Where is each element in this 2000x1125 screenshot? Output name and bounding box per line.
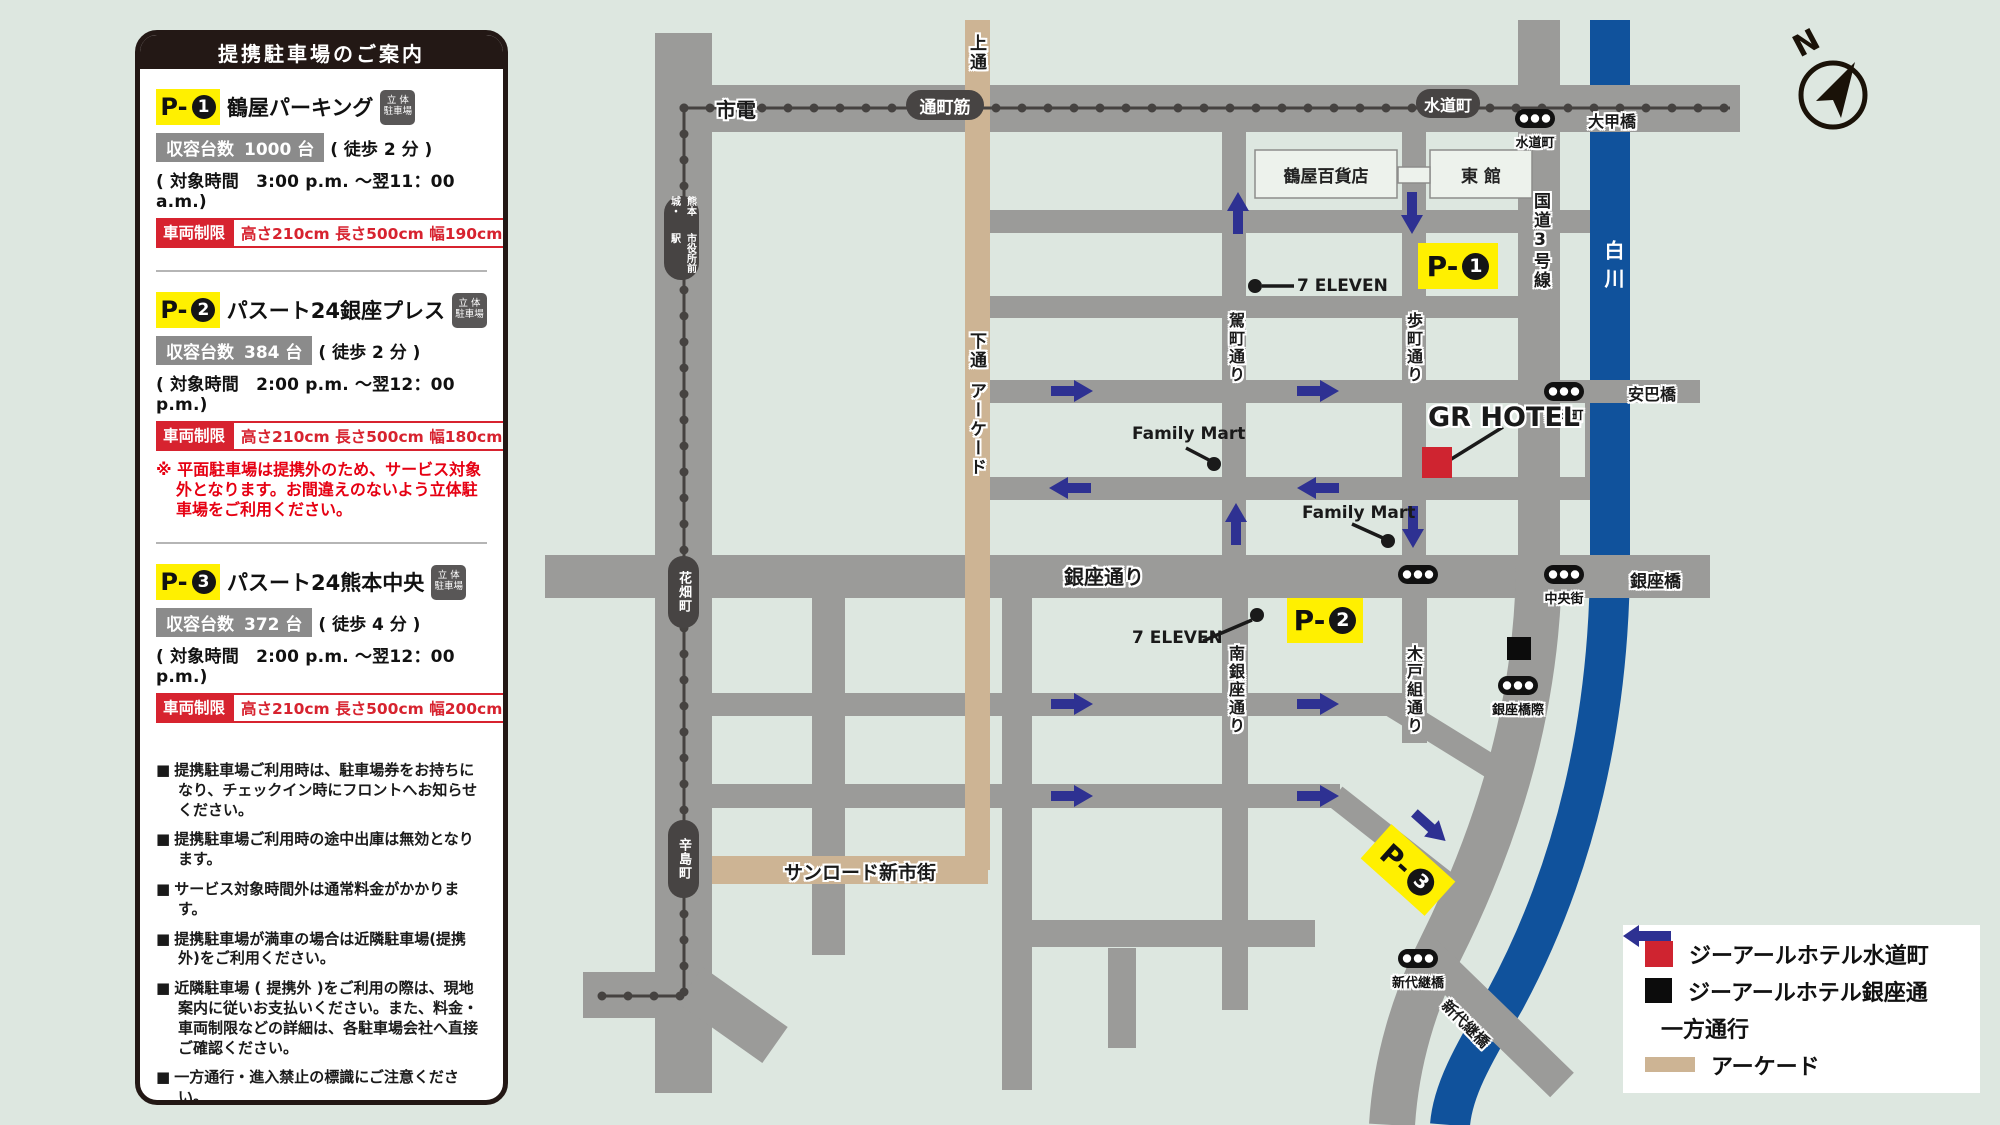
- station-karashimacho: 辛島町: [668, 820, 699, 898]
- street-sunroad: サンロード新市街: [784, 858, 936, 885]
- street-kamitori: 上通: [964, 34, 989, 72]
- legend-label-oneway: 一方通行: [1661, 1012, 1749, 1044]
- divider: [156, 270, 487, 272]
- gr-hotel-ginzadori-marker: [1507, 637, 1531, 660]
- p3-number: 3: [192, 570, 216, 594]
- note-item: ■近隣駐車場 ( 提携外 )をご利用の際は、現地案内に従いお支払いください。また…: [156, 979, 487, 1058]
- panel-body: P-1 鶴屋パーキング 立 体駐車場 収容台数1000 台 ( 徒歩 2 分 )…: [140, 89, 503, 1105]
- multistory-badge: 立 体駐車場: [452, 293, 487, 328]
- p1-number: 1: [192, 95, 216, 119]
- street-route3: 国道3号線: [1528, 192, 1553, 290]
- family-mart-1: Family Mart: [1132, 424, 1245, 444]
- lot2-name: パスート24銀座プレス: [227, 295, 445, 325]
- multistory-badge: 立 体駐車場: [431, 565, 466, 600]
- parking-info-panel: 提携駐車場のご案内 P-1 鶴屋パーキング 立 体駐車場 収容台数1000 台 …: [135, 30, 508, 1105]
- note-item: ■提携駐車場が満車の場合は近隣駐車場(提携外)をご利用ください。: [156, 930, 487, 970]
- note-item: ■サービス対象時間外は通常料金がかかります。: [156, 880, 487, 920]
- p2-number: 2: [191, 298, 215, 322]
- lot1-limit-label: 車両制限: [156, 218, 232, 248]
- lot1-walk-time: ( 徒歩 2 分 ): [330, 135, 432, 160]
- notes-list: ■提携駐車場ご利用時は、駐車場券をお持ちになり、チェックイン時にフロントへお知ら…: [156, 761, 487, 1105]
- seven-eleven-1: 7 ELEVEN: [1297, 276, 1388, 296]
- lot3-name: パスート24熊本中央: [227, 567, 424, 597]
- lot2-limit-label: 車両制限: [156, 421, 232, 451]
- note-item: ■提携駐車場ご利用時は、駐車場券をお持ちになり、チェックイン時にフロントへお知ら…: [156, 761, 487, 820]
- street-minamiginza: 南銀座通り: [1223, 645, 1247, 735]
- legend-label-hotel-suidocho: ジーアールホテル水道町: [1689, 938, 1929, 970]
- lot2-capacity: 収容台数384 台: [156, 336, 312, 365]
- seven-eleven-2: 7 ELEVEN: [1132, 628, 1223, 648]
- station-hanabatacho: 花畑町: [668, 556, 699, 628]
- panel-title: 提携駐車場のご案内: [140, 35, 503, 69]
- arcade-streets: [712, 20, 990, 884]
- lot1-capacity: 収容台数1000 台: [156, 133, 324, 162]
- note-item: ■提携駐車場ご利用時の途中出庫は無効となります。: [156, 830, 487, 870]
- map-legend: ジーアールホテル水道町 ジーアールホテル銀座通 一方通行 アーケード: [1623, 925, 1980, 1093]
- map-p2-badge: P-2: [1287, 598, 1363, 643]
- parking-lot-1: P-1 鶴屋パーキング 立 体駐車場 収容台数1000 台 ( 徒歩 2 分 )…: [156, 89, 487, 248]
- city-map: 市電 通町筋 水道町 熊本城・市役所前駅 花畑町 辛島町 上通 下通 アーケード…: [540, 0, 2000, 1125]
- tsuruya-east-building: 東 館: [1430, 150, 1532, 198]
- map-p1-badge: P-1: [1418, 243, 1498, 289]
- divider: [156, 542, 487, 544]
- lot1-limit-value: 高さ210cm 長さ500cm 幅190cm: [232, 218, 508, 248]
- street-shimotori: 下通: [964, 332, 989, 370]
- station-kumamotojo: 熊本城・市役所前駅: [664, 196, 699, 280]
- lot2-hours: ( 対象時間 2:00 p.m. ～翌12：00 p.m.): [156, 370, 487, 415]
- legend-black-square-icon: [1645, 978, 1672, 1003]
- lot3-hours: ( 対象時間 2:00 p.m. ～翌12：00 p.m.): [156, 642, 487, 687]
- lot2-walk-time: ( 徒歩 2 分 ): [318, 338, 420, 363]
- lot3-limit-value: 高さ210cm 長さ500cm 幅200cm: [232, 693, 508, 723]
- street-arcade: アーケード: [964, 382, 989, 477]
- multistory-badge: 立 体駐車場: [380, 90, 415, 125]
- street-kagomachi: 駕町通り: [1223, 312, 1247, 384]
- lot2-warning: ※ 平面駐車場は提携外のため、サービス対象外となります。お間違えのないよう立体駐…: [156, 460, 487, 520]
- station-suidocho: 水道町: [1416, 89, 1480, 118]
- tl-label-suidocho: 水道町: [1515, 132, 1554, 151]
- tl-label-ginzabashigiwa: 銀座橋際: [1492, 699, 1544, 718]
- river-label: 白川: [1599, 240, 1628, 296]
- note-item: ■一方通行・進入禁止の標識にご注意ください。: [156, 1068, 487, 1105]
- street-kidogumi: 木戸組通り: [1401, 645, 1425, 735]
- p3-badge: P-3: [156, 564, 220, 600]
- bridge-ammi: 安巴橋: [1628, 381, 1676, 405]
- station-torichosuji: 通町筋: [906, 90, 984, 120]
- tsuruya-department-store: 鶴屋百貨店: [1255, 150, 1397, 198]
- street-ginzadori: 銀座通り: [1064, 561, 1144, 590]
- legend-label-hotel-ginzadori: ジーアールホテル銀座通: [1688, 975, 1928, 1007]
- compass-icon: [1801, 62, 1865, 127]
- lot3-limit-label: 車両制限: [156, 693, 232, 723]
- gr-hotel-label: GR HOTEL: [1428, 402, 1580, 433]
- lot2-limit-value: 高さ210cm 長さ500cm 幅180cm: [232, 421, 508, 451]
- bridge-taiko: 大甲橋: [1588, 108, 1636, 132]
- lot1-hours: ( 対象時間 3:00 p.m. ～翌11：00 a.m.): [156, 167, 487, 212]
- parking-lot-3: P-3 パスート24熊本中央 立 体駐車場 収容台数372 台 ( 徒歩 4 分…: [156, 564, 487, 723]
- lot3-capacity: 収容台数372 台: [156, 608, 312, 637]
- tl-label-shindaitsugibashi: 新代継橋: [1392, 972, 1444, 991]
- tram-label: 市電: [716, 94, 756, 123]
- tl-label-chuogai: 中央街: [1544, 588, 1583, 607]
- bridge-ginza: 銀座橋: [1630, 567, 1681, 592]
- legend-arcade-icon: [1645, 1057, 1695, 1072]
- page: { "panel": { "title": "提携駐車場のご案内", "bull…: [0, 0, 2000, 1125]
- legend-label-arcade: アーケード: [1711, 1049, 1820, 1081]
- lot3-walk-time: ( 徒歩 4 分 ): [318, 610, 420, 635]
- lot1-name: 鶴屋パーキング: [227, 92, 373, 122]
- p2-badge: P-2: [156, 292, 220, 328]
- gr-hotel-suidocho-marker: [1422, 447, 1452, 478]
- p1-badge: P-1: [156, 89, 220, 125]
- street-homachi: 歩町通り: [1401, 312, 1425, 384]
- family-mart-2: Family Mart: [1302, 503, 1415, 523]
- parking-lot-2: P-2 パスート24銀座プレス 立 体駐車場 収容台数384 台 ( 徒歩 2 …: [156, 292, 487, 520]
